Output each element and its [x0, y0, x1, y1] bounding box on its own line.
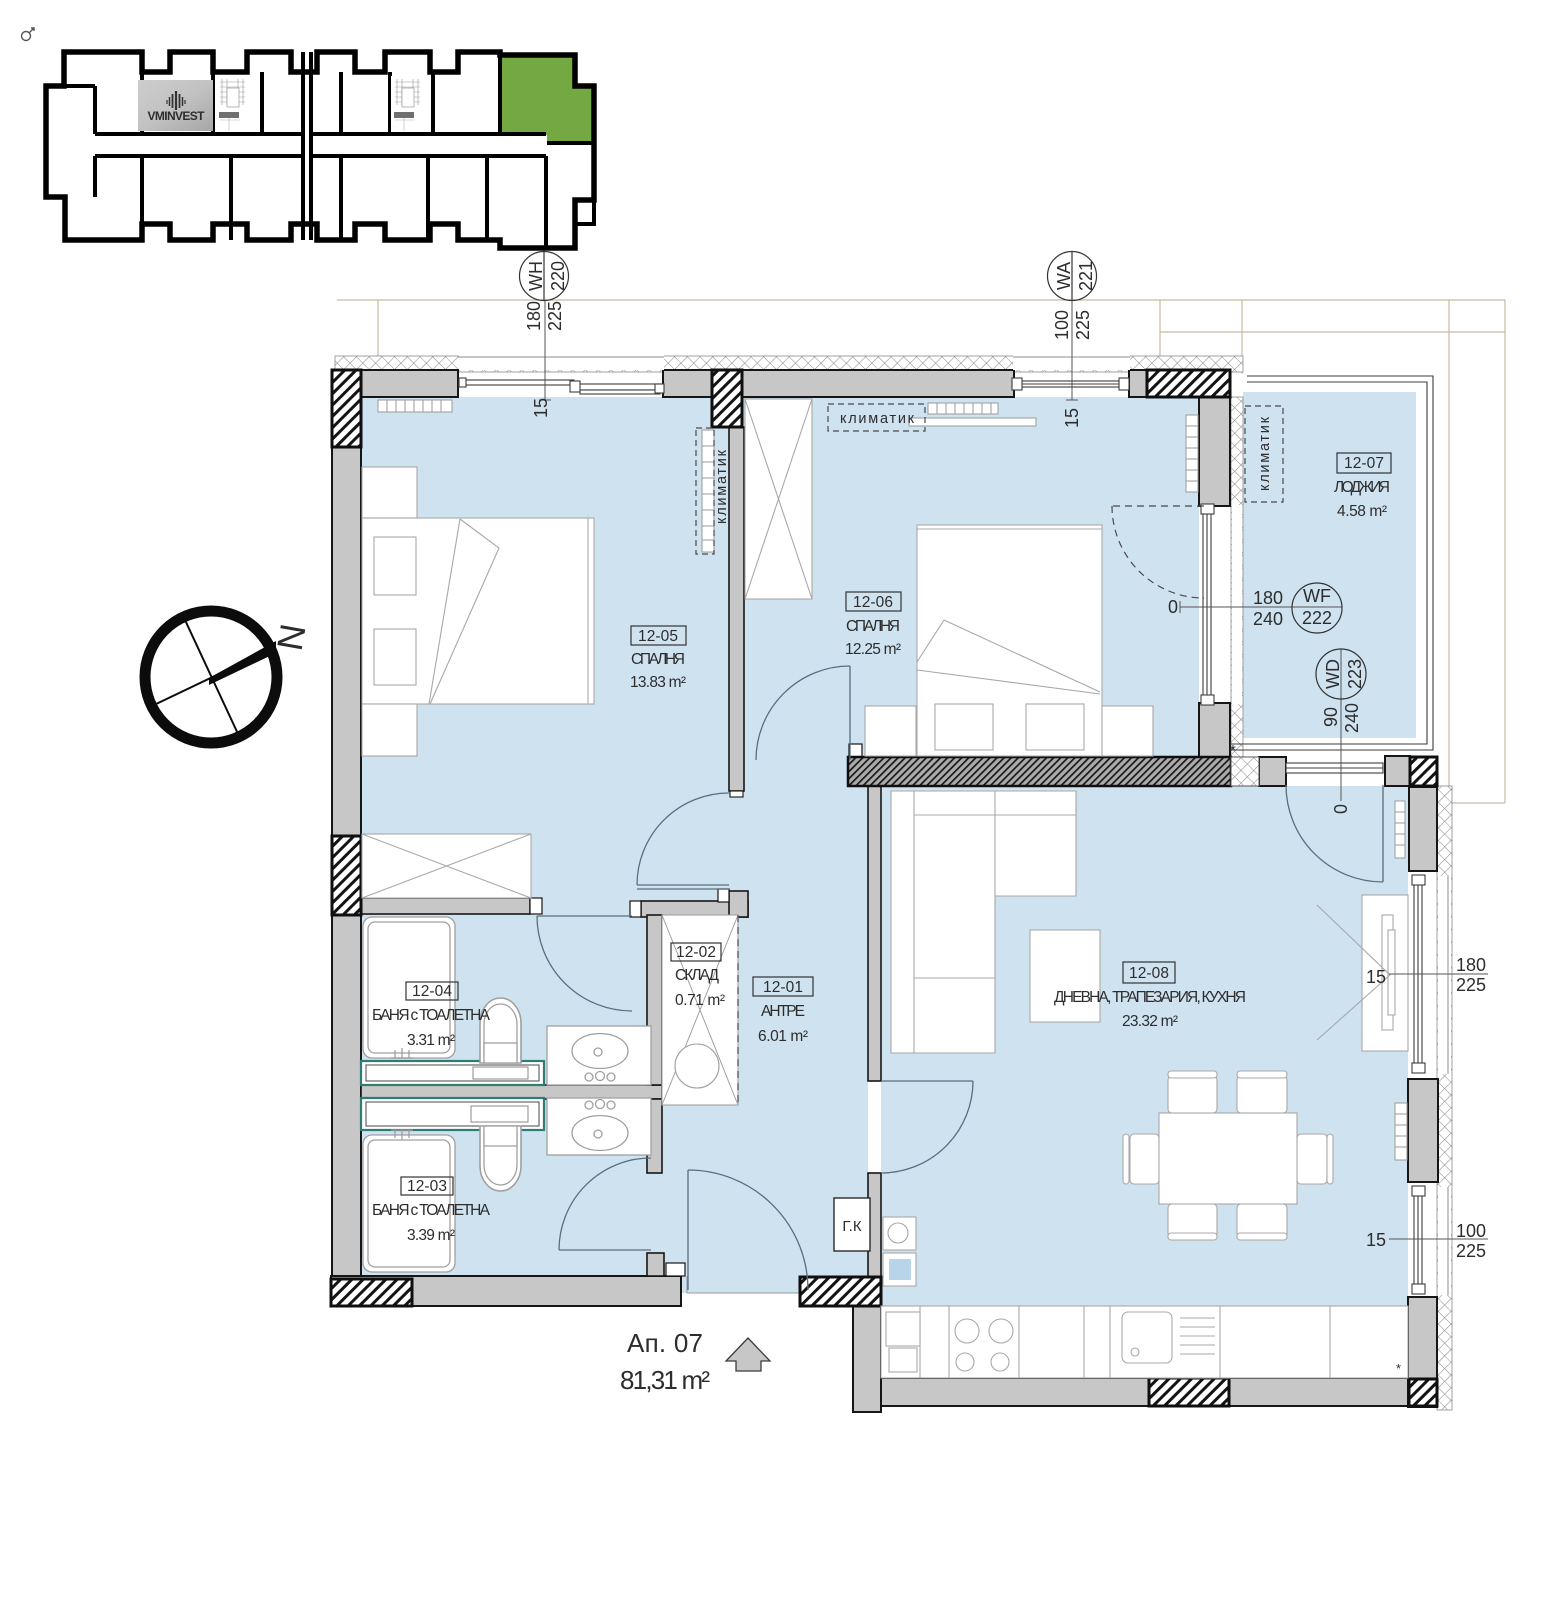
svg-text:15: 15	[1366, 967, 1386, 987]
svg-text:12-08: 12-08	[1129, 965, 1169, 982]
svg-text:180: 180	[1253, 588, 1283, 608]
svg-text:WD: WD	[1323, 659, 1343, 689]
svg-text:100: 100	[1456, 1221, 1486, 1241]
svg-text:*: *	[1396, 1361, 1401, 1376]
svg-text:СПАЛНЯ: СПАЛНЯ	[846, 618, 900, 635]
svg-text:180: 180	[524, 301, 544, 331]
svg-text:225: 225	[1073, 310, 1093, 340]
svg-text:100: 100	[1052, 310, 1072, 340]
svg-text:240: 240	[1342, 703, 1362, 733]
svg-text:220: 220	[548, 261, 568, 291]
svg-text:240: 240	[1253, 609, 1283, 629]
svg-text:АНТРЕ: АНТРЕ	[761, 1003, 805, 1020]
svg-text:WA: WA	[1054, 262, 1074, 290]
svg-text:ДНЕВНА, ТРАПЕЗАРИЯ, КУХНЯ: ДНЕВНА, ТРАПЕЗАРИЯ, КУХНЯ	[1054, 989, 1246, 1006]
svg-text:0: 0	[1168, 597, 1178, 617]
svg-text:225: 225	[1456, 975, 1486, 995]
svg-text:180: 180	[1456, 955, 1486, 975]
svg-text:Ап. 07: Ап. 07	[627, 1328, 703, 1358]
svg-text:6.01 m²: 6.01 m²	[758, 1028, 808, 1045]
svg-text:БАНЯ с ТОАЛЕТНА: БАНЯ с ТОАЛЕТНА	[372, 1202, 491, 1219]
svg-text:12-02: 12-02	[676, 944, 716, 961]
svg-text:ЛОДЖИЯ: ЛОДЖИЯ	[1334, 479, 1390, 496]
svg-text:23.32 m²: 23.32 m²	[1122, 1013, 1178, 1030]
svg-text:221: 221	[1076, 261, 1096, 291]
svg-text:15: 15	[1062, 408, 1082, 428]
svg-text:12-06: 12-06	[853, 594, 893, 611]
svg-text:12-07: 12-07	[1344, 455, 1384, 472]
svg-text:12-03: 12-03	[407, 1178, 447, 1195]
svg-text:VMINVEST: VMINVEST	[148, 109, 206, 123]
svg-text:225: 225	[1456, 1241, 1486, 1261]
svg-text:БАНЯ с ТОАЛЕТНА: БАНЯ с ТОАЛЕТНА	[372, 1007, 491, 1024]
svg-text:13.83 m²: 13.83 m²	[630, 674, 686, 691]
svg-text:222: 222	[1302, 608, 1332, 628]
svg-text:81,31 m²: 81,31 m²	[620, 1365, 710, 1395]
svg-text:Г.К: Г.К	[842, 1218, 861, 1235]
svg-text:4.58 m²: 4.58 m²	[1337, 503, 1387, 520]
svg-text:3.39 m²: 3.39 m²	[407, 1227, 455, 1244]
svg-text:223: 223	[1345, 659, 1365, 689]
svg-text:90: 90	[1321, 707, 1341, 727]
svg-text:12.25 m²: 12.25 m²	[845, 641, 901, 658]
svg-text:СКЛАД: СКЛАД	[675, 967, 720, 984]
svg-text:СПАЛНЯ: СПАЛНЯ	[631, 651, 685, 668]
svg-text:0: 0	[1331, 804, 1351, 814]
svg-text:12-04: 12-04	[412, 983, 452, 1000]
svg-text:225: 225	[545, 301, 565, 331]
svg-text:WF: WF	[1303, 586, 1331, 606]
svg-text:0.71 m²: 0.71 m²	[675, 992, 725, 1009]
svg-text:12-05: 12-05	[638, 628, 678, 645]
svg-text:15: 15	[1366, 1230, 1386, 1250]
svg-text:WH: WH	[526, 261, 546, 291]
svg-text:12-01: 12-01	[763, 979, 803, 996]
svg-text:15: 15	[531, 398, 551, 418]
svg-text:3.31 m²: 3.31 m²	[407, 1032, 455, 1049]
svg-text:климатик: климатик	[714, 449, 730, 524]
svg-text:климатик: климатик	[840, 411, 915, 427]
svg-text:климатик: климатик	[1257, 416, 1273, 491]
